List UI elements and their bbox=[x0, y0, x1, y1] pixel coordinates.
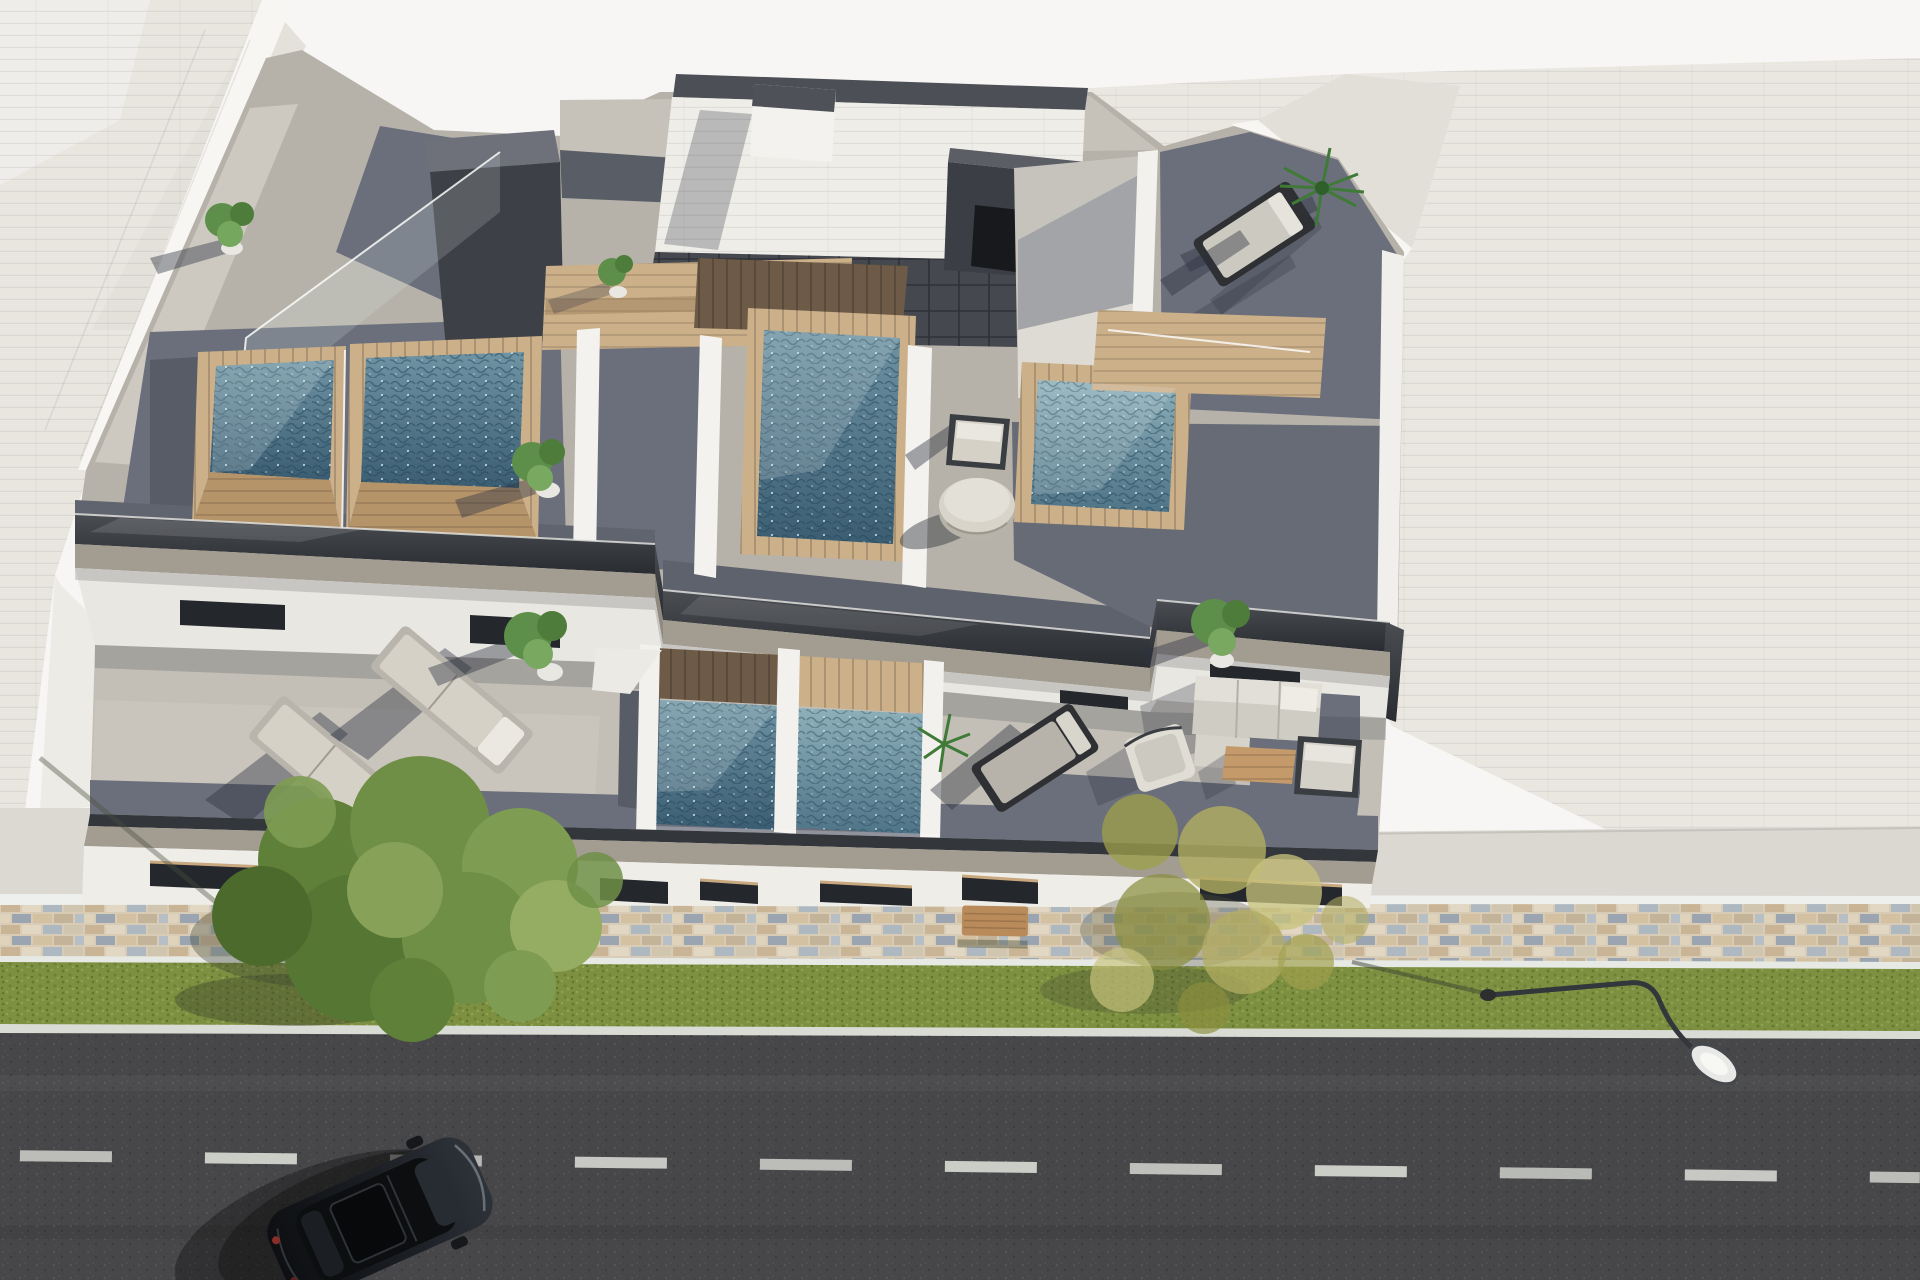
armchair bbox=[1294, 736, 1362, 798]
roof-wood-steps-right bbox=[1092, 310, 1326, 398]
lower-pool-divider-wall bbox=[774, 648, 800, 834]
rooftop-pool-2 bbox=[346, 336, 542, 542]
main-building bbox=[75, 50, 1404, 908]
upper-glazing-1 bbox=[180, 600, 285, 630]
street-bench bbox=[958, 905, 1029, 948]
render-viewport bbox=[0, 0, 1920, 1280]
roof-skylight-box bbox=[750, 84, 836, 162]
lower-pool-complex bbox=[592, 644, 944, 846]
roof-divider-wall-1 bbox=[573, 328, 600, 560]
